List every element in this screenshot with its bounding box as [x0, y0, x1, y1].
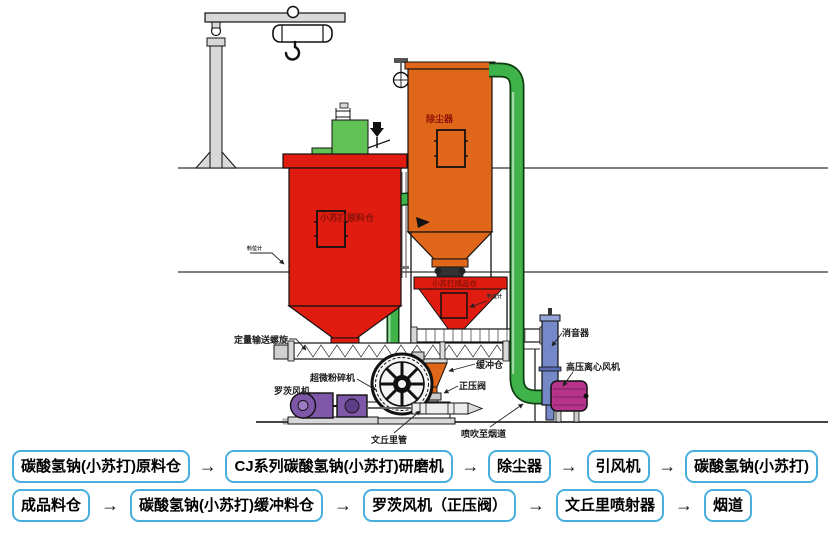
level-gauge-right-label: 料位计 — [487, 293, 502, 300]
screw-conveyor-upper — [411, 327, 546, 344]
pressure-valve-label: 正压阀 — [459, 380, 486, 391]
hp-fan-label: 高压离心风机 — [566, 361, 620, 372]
flow-arrow: → — [527, 495, 545, 516]
centrifugal-fan — [551, 381, 589, 422]
flow-arrow: → — [101, 495, 119, 516]
flow-box-raw-silo: 碳酸氢钠(小苏打)原料仓 — [12, 450, 190, 483]
flow-arrow: → — [675, 495, 693, 516]
process-diagram-page: 小苏打原料仓 除尘器 小苏打成品仓 — [0, 0, 830, 536]
flow-box-dust-collector: 除尘器 — [488, 450, 551, 483]
silencer-label: 消音器 — [562, 327, 590, 338]
flow-box-product-silo: 成品料仓 — [12, 489, 90, 522]
collector-manhole — [437, 130, 465, 167]
mill-label: 超微粉碎机 — [309, 372, 355, 383]
flow-box-roots-blower: 罗茨风机（正压阀） — [363, 489, 516, 522]
dust-collector-label: 除尘器 — [426, 113, 454, 124]
raw-silo-label: 小苏打原料仓 — [319, 212, 375, 223]
flow-arrow: → — [199, 456, 217, 477]
dust-collector: 除尘器 — [394, 58, 496, 276]
flowchart-row-1: 碳酸氢钠(小苏打)原料仓 → CJ系列碳酸氢钠(小苏打)研磨机 → 除尘器 → … — [12, 450, 818, 483]
hook-icon — [286, 42, 299, 60]
flow-box-mill: CJ系列碳酸氢钠(小苏打)研磨机 — [225, 450, 452, 483]
product-silo-label: 小苏打成品仓 — [432, 278, 477, 288]
jib-crane — [196, 7, 345, 169]
venturi-label: 文丘里管 — [370, 434, 407, 445]
raw-material-silo: 小苏打原料仓 — [283, 103, 407, 345]
screw-conveyor-label: 定量输送螺旋 — [233, 334, 289, 345]
buffer-hopper-label: 缓冲仓 — [476, 359, 504, 370]
level-gauge-left-label: 料位计 — [247, 245, 262, 252]
rotary-valve — [432, 259, 468, 267]
flow-arrow: → — [461, 456, 479, 477]
flow-arrow: → — [334, 495, 352, 516]
flowchart-row-2: 成品料仓 → 碳酸氢钠(小苏打)缓冲料仓 → 罗茨风机（正压阀） → 文丘里喷射… — [12, 489, 818, 522]
screw-motor — [274, 345, 288, 359]
equipment-schematic: 小苏打原料仓 除尘器 小苏打成品仓 — [0, 0, 830, 450]
process-flowchart: 碳酸氢钠(小苏打)原料仓 → CJ系列碳酸氢钠(小苏打)研磨机 → 除尘器 → … — [0, 449, 830, 535]
flow-box-bicarbonate: 碳酸氢钠(小苏打) — [685, 450, 818, 483]
flue-injection-label: 喷吹至烟道 — [461, 428, 506, 439]
venturi-tube — [412, 403, 482, 414]
trolley-ring — [288, 7, 299, 18]
flow-box-buffer-silo: 碳酸氢钠(小苏打)缓冲料仓 — [130, 489, 323, 522]
flow-arrow: → — [560, 456, 578, 477]
product-silo-manhole — [441, 293, 467, 318]
flow-box-induced-fan: 引风机 — [587, 450, 650, 483]
silo-top-valve — [370, 128, 384, 137]
roots-blower-label: 罗茨风机 — [274, 385, 310, 396]
flow-box-flue: 烟道 — [704, 489, 752, 522]
flow-box-venturi-ejector: 文丘里喷射器 — [556, 489, 664, 522]
flow-arrow: → — [658, 456, 676, 477]
